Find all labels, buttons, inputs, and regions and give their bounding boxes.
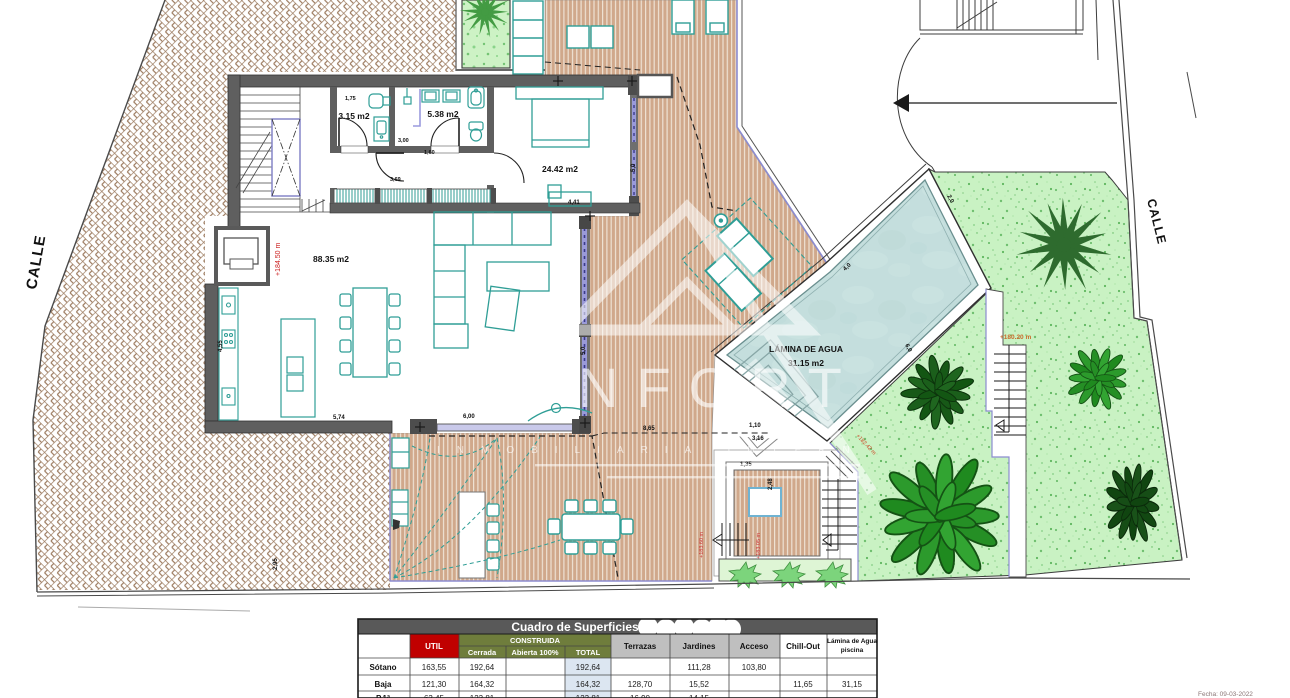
svg-text:11,65: 11,65 [793,680,813,689]
svg-text:Terrazas: Terrazas [624,642,657,651]
svg-text:3,69: 3,69 [390,177,401,183]
svg-text:Fecha: 09-03-2022: Fecha: 09-03-2022 [1198,691,1253,698]
svg-text:NFORT: NFORT [578,356,860,419]
svg-text:5,74: 5,74 [333,415,345,421]
svg-text:2,95: 2,95 [273,558,279,570]
svg-text:4,55: 4,55 [218,340,224,352]
svg-text:1,75: 1,75 [345,96,356,102]
svg-text:Baja: Baja [375,680,392,689]
svg-text:Chill-Out: Chill-Out [786,642,820,651]
svg-text:163,55: 163,55 [422,663,447,672]
svg-text:Cuadro de Superficies: Cuadro de Superficies [511,620,639,634]
svg-text:5,0: 5,0 [581,346,587,355]
svg-text:+183.60 m: +183.60 m [699,531,705,558]
svg-text:1,60: 1,60 [424,150,435,156]
svg-text:CONSTRUIDA: CONSTRUIDA [510,636,561,645]
svg-text:1,10: 1,10 [749,423,761,429]
svg-text:+183.05 m: +183.05 m [756,532,762,559]
svg-text:111,28: 111,28 [687,663,711,672]
svg-text:31,15: 31,15 [842,680,863,689]
svg-text:Lámina de Agua: Lámina de Agua [827,638,877,645]
svg-text:15,52: 15,52 [689,680,710,689]
svg-text:121,30: 121,30 [422,680,447,689]
svg-text:5.38 m2: 5.38 m2 [427,109,458,119]
svg-text:103,80: 103,80 [742,663,767,672]
svg-text:Jardines: Jardines [683,642,716,651]
svg-text:8,65: 8,65 [643,426,655,432]
svg-text:3.15 m2: 3.15 m2 [338,111,369,121]
svg-text:+180.20 m: +180.20 m [1000,334,1031,341]
svg-text:Abierta 100%: Abierta 100% [511,648,558,657]
svg-text:3,16: 3,16 [752,436,764,442]
svg-text:Cerrada: Cerrada [468,648,497,657]
svg-text:+184.50 m: +184.50 m [275,243,282,276]
svg-text:6,00: 6,00 [463,414,475,420]
svg-text:5,0: 5,0 [631,163,637,172]
svg-text:3,00: 3,00 [398,138,409,144]
svg-text:192,64: 192,64 [576,663,601,672]
svg-text:128,70: 128,70 [628,680,653,689]
svg-text:piscina: piscina [841,647,864,654]
svg-text:UTIL: UTIL [425,642,443,651]
svg-text:4,41: 4,41 [568,200,580,206]
svg-text:TOTAL: TOTAL [576,648,601,657]
svg-text:192,64: 192,64 [470,663,495,672]
svg-text:164,32: 164,32 [576,680,601,689]
svg-text:2,48: 2,48 [768,478,774,490]
svg-text:88.35 m2: 88.35 m2 [313,254,349,264]
svg-text:Acceso: Acceso [740,642,769,651]
svg-text:INMOBILIARIA INTERN: INMOBILIARIA INTERN [437,445,867,456]
svg-text:Sótano: Sótano [369,663,396,672]
svg-text:164,32: 164,32 [470,680,495,689]
svg-text:24.42 m2: 24.42 m2 [542,164,578,174]
